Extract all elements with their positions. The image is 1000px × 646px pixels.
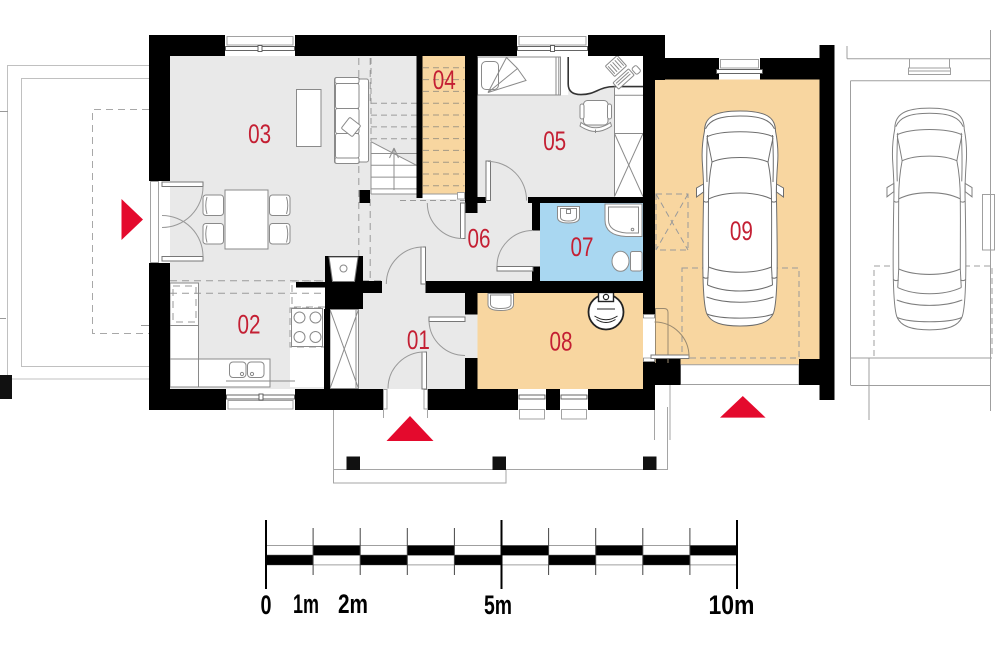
svg-text:07: 07 xyxy=(571,232,594,262)
svg-text:2m: 2m xyxy=(338,589,368,619)
svg-text:1m: 1m xyxy=(293,589,319,619)
svg-text:03: 03 xyxy=(248,119,271,149)
svg-text:09: 09 xyxy=(730,216,753,246)
svg-text:02: 02 xyxy=(238,310,261,340)
svg-text:04: 04 xyxy=(433,65,456,95)
svg-text:10m: 10m xyxy=(709,590,755,620)
svg-text:05: 05 xyxy=(543,126,566,156)
svg-text:06: 06 xyxy=(468,224,491,254)
svg-text:0: 0 xyxy=(261,590,272,620)
svg-text:5m: 5m xyxy=(484,590,512,620)
svg-text:08: 08 xyxy=(550,327,573,357)
svg-text:01: 01 xyxy=(407,325,430,355)
